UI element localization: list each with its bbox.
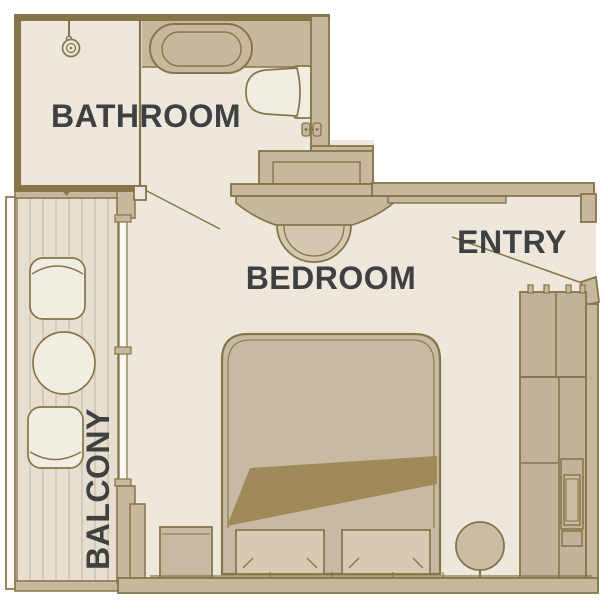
- nightstand: [160, 527, 212, 579]
- wardrobe-knob: [566, 285, 571, 293]
- bathroom-left-wall: [14, 14, 21, 192]
- floor-plan: BATHROOM BEDROOM ENTRY BALCONY: [0, 0, 608, 610]
- double-bed: [222, 334, 440, 574]
- bottom-wall: [118, 578, 598, 593]
- vanity-shelf: [231, 184, 381, 196]
- toilet: [246, 68, 300, 116]
- wardrobe-knob: [544, 285, 549, 293]
- bathroom-bottom-wall: [14, 185, 147, 192]
- wardrobe-knob: [580, 285, 585, 293]
- balcony-bottom-wall: [15, 581, 118, 591]
- balcony-railing: [6, 197, 15, 589]
- wardrobe-body: [520, 292, 586, 588]
- bathroom-label: BATHROOM: [46, 97, 246, 135]
- entry-shelf: [388, 196, 506, 203]
- wardrobe-knob: [528, 285, 533, 293]
- wall-end-cap: [134, 186, 146, 200]
- wall-segment: [130, 504, 145, 583]
- entry-top-wall: [372, 183, 594, 196]
- bedroom-label: BEDROOM: [231, 259, 431, 297]
- entry-label: ENTRY: [432, 223, 592, 261]
- wall-segment: [117, 189, 135, 218]
- window-mullion: [115, 215, 131, 222]
- balcony-chair-top: [30, 258, 85, 319]
- balcony-table: [33, 332, 95, 394]
- window-mullion: [115, 347, 131, 354]
- wardrobe: [520, 285, 586, 588]
- pillow-right: [342, 530, 430, 574]
- balcony-label: BALCONY: [79, 403, 117, 575]
- window-mullion: [115, 479, 131, 486]
- pillow-left: [236, 530, 324, 574]
- bathroom-top-wall: [14, 14, 330, 21]
- tv-shelf: [273, 162, 360, 184]
- entry-right-wall-upper: [581, 194, 596, 222]
